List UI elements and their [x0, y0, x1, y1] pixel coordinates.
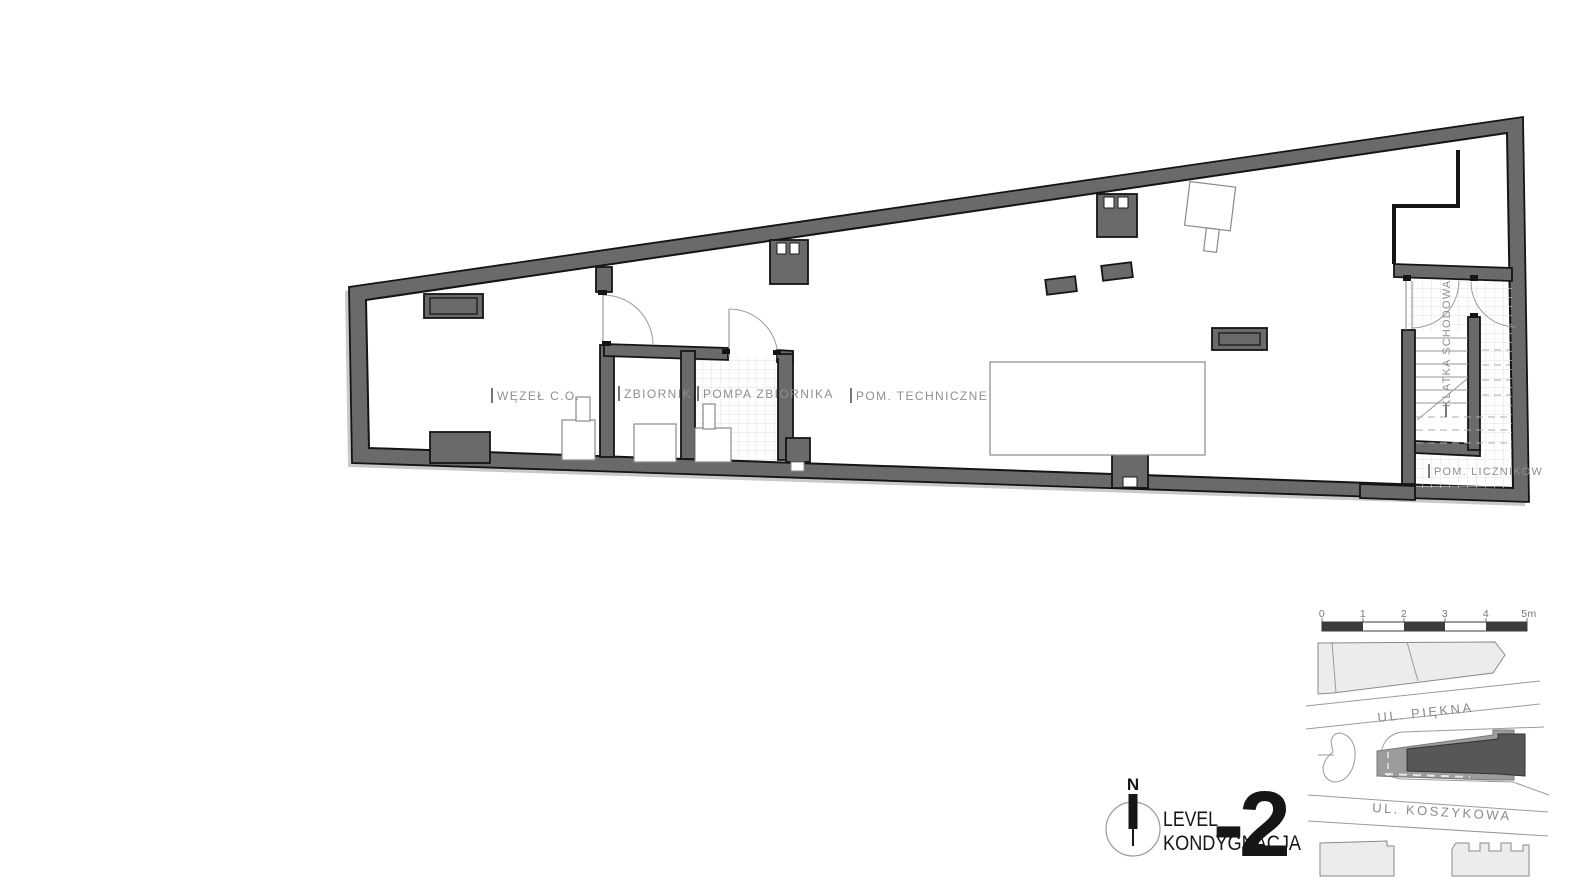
room-label-pompa: POMPA ZBIORNIKA: [703, 387, 834, 401]
title-block: N LEVEL KONDYGNACJA -2: [1106, 772, 1301, 876]
street-label-piekna: UL. PIĘKNA: [1377, 700, 1475, 725]
scale-tick-5: 5m: [1521, 608, 1537, 620]
equipment-tank-large: [990, 362, 1205, 455]
site-building-row: [1318, 642, 1505, 694]
wall-landing-top: [1394, 264, 1512, 281]
wall-pompa-right-nub: [786, 438, 810, 462]
site-blob: [1323, 733, 1355, 782]
site-subject-building: [1377, 730, 1525, 780]
scale-bar: 0 1 2 3 4 5m: [1319, 608, 1537, 631]
wall-wezel-zbiornik: [600, 345, 614, 457]
pier-bottom-wezel: [430, 432, 490, 463]
wall-stair-left: [1402, 330, 1415, 484]
wall-zbiornik-pompa: [681, 351, 695, 459]
wall-bottom-step: [1360, 484, 1415, 500]
room-label-wezel: WĘZEŁ C.O.: [497, 389, 580, 403]
room-label-licznikow: POM. LICZNIKÓW: [1434, 465, 1543, 478]
drawing-sheet: WĘZEŁ C.O. ZBIORNIK POMPA ZBIORNIKA POM.…: [0, 0, 1582, 886]
site-map: UL. PIĘKNA UL. KOSZYKOWA: [1306, 642, 1549, 876]
fixture-zbiornik: [634, 424, 676, 462]
floorplan-canvas: WĘZEŁ C.O. ZBIORNIK POMPA ZBIORNIKA POM.…: [0, 0, 1582, 886]
room-label-zbiornik: ZBIORNIK: [624, 387, 692, 401]
north-arrow: N: [1106, 775, 1160, 856]
room-label-techniczne: POM. TECHNICZNE: [856, 389, 988, 403]
column-small-1: [1045, 276, 1077, 295]
site-building-bottom-1: [1320, 841, 1394, 876]
floor-plan: WĘZEŁ C.O. ZBIORNIK POMPA ZBIORNIKA POM.…: [345, 117, 1543, 506]
room-label-klatka: KLATKA SCHODOWA: [1441, 280, 1453, 407]
title-level: LEVEL: [1163, 808, 1218, 831]
column-small-2: [1101, 262, 1133, 281]
pier-top-mid: [770, 240, 808, 284]
pier-top-right: [1097, 194, 1137, 237]
north-label: N: [1127, 775, 1139, 794]
column-large: [1212, 328, 1267, 350]
floor-area: [366, 133, 1513, 488]
niche-pompa-bottom: [791, 462, 804, 471]
site-building-bottom-2: [1452, 843, 1529, 876]
tile-floor-corridor: [1479, 330, 1512, 452]
wall-stub-top: [596, 267, 612, 292]
title-level-number: -2: [1213, 772, 1287, 876]
street-koszykowa-edge-bottom: [1308, 821, 1548, 836]
pier-top-wezel: [424, 294, 483, 318]
street-label-koszykowa: UL. KOSZYKOWA: [1372, 800, 1512, 823]
